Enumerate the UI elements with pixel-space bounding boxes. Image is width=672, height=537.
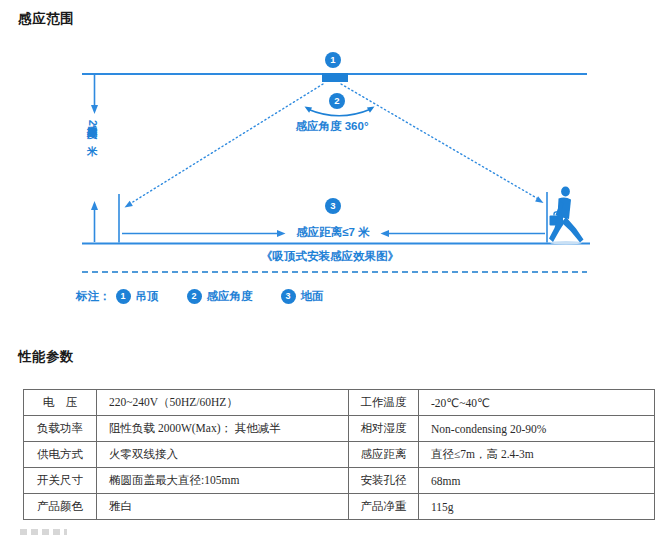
ceiling-sensor bbox=[322, 73, 348, 82]
spec-value: 68mm bbox=[419, 468, 655, 494]
spec-label: 负载功率 bbox=[24, 416, 97, 442]
distance-label: 感应距离≤7 米 bbox=[296, 226, 369, 239]
spec-label: 供电方式 bbox=[24, 442, 97, 468]
marker-angle: 2 bbox=[329, 93, 345, 109]
table-row: 负载功率 阻性负载 2000W(Max)； 其他减半 相对湿度 Non-cond… bbox=[24, 416, 655, 442]
spec-label: 相对湿度 bbox=[349, 416, 419, 442]
spec-table: 电 压 220~240V（50HZ/60HZ） 工作温度 -20℃~40℃ 负载… bbox=[23, 389, 655, 520]
spec-value: 椭圆面盖最大直径:105mm bbox=[97, 468, 349, 494]
legend-item-ceiling: 1 吊顶 bbox=[116, 289, 159, 304]
sensing-range-diagram bbox=[0, 0, 672, 330]
legend-prefix: 标注： bbox=[76, 289, 111, 304]
table-row: 产品颜色 雅白 产品净重 115g bbox=[24, 494, 655, 520]
spec-label: 产品颜色 bbox=[24, 494, 97, 520]
spec-value: 雅白 bbox=[97, 494, 349, 520]
angle-label: 感应角度 360° bbox=[296, 120, 369, 133]
legend-label-ground: 地面 bbox=[301, 289, 324, 304]
legend-label-angle: 感应角度 bbox=[207, 289, 253, 304]
spec-value: Non-condensing 20-90% bbox=[419, 416, 655, 442]
legend-label-ceiling: 吊顶 bbox=[136, 289, 159, 304]
walking-person-with-briefcase-icon bbox=[549, 187, 584, 245]
spec-label: 感应距离 bbox=[349, 442, 419, 468]
clipped-next-section bbox=[20, 529, 67, 535]
spec-value: 火零双线接入 bbox=[97, 442, 349, 468]
legend: 标注： 1 吊顶 2 感应角度 3 地面 bbox=[76, 289, 324, 304]
marker-ground: 3 bbox=[325, 198, 341, 214]
legend-item-angle: 2 感应角度 bbox=[187, 289, 253, 304]
spec-label: 产品净重 bbox=[349, 494, 419, 520]
table-row: 电 压 220~240V（50HZ/60HZ） 工作温度 -20℃~40℃ bbox=[24, 390, 655, 416]
table-row: 供电方式 火零双线接入 感应距离 直径≤7m，高 2.4-3m bbox=[24, 442, 655, 468]
spec-label: 开关尺寸 bbox=[24, 468, 97, 494]
spec-value: -20℃~40℃ bbox=[419, 390, 655, 416]
spec-value: 115g bbox=[419, 494, 655, 520]
spec-value: 阻性负载 2000W(Max)； 其他减半 bbox=[97, 416, 349, 442]
spec-label: 工作温度 bbox=[349, 390, 419, 416]
legend-dot-3: 3 bbox=[281, 289, 296, 304]
height-label: 感应高度2.4米 bbox=[86, 116, 98, 208]
legend-item-ground: 3 地面 bbox=[281, 289, 324, 304]
spec-label: 电 压 bbox=[24, 390, 97, 416]
legend-dot-2: 2 bbox=[187, 289, 202, 304]
spec-value: 直径≤7m，高 2.4-3m bbox=[419, 442, 655, 468]
section-title-performance-params: 性能参数 bbox=[18, 348, 74, 366]
spec-value: 220~240V（50HZ/60HZ） bbox=[97, 390, 349, 416]
diagram-caption: 《吸顶式安装感应效果图》 bbox=[261, 250, 399, 263]
spec-label: 安装孔径 bbox=[349, 468, 419, 494]
legend-dot-1: 1 bbox=[116, 289, 131, 304]
product-spec-page: 感应范围 bbox=[0, 0, 672, 537]
table-row: 开关尺寸 椭圆面盖最大直径:105mm 安装孔径 68mm bbox=[24, 468, 655, 494]
marker-ceiling: 1 bbox=[325, 52, 341, 68]
